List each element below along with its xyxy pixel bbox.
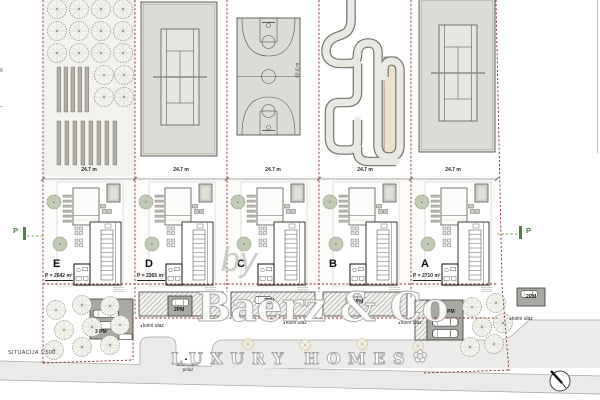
entrance-label-1: ◂kolni ulaz	[140, 324, 164, 329]
plot-area-a: P = 2710 m²	[413, 274, 441, 281]
plot-area-e: P = 2642 m²	[45, 274, 73, 281]
parking-label-a: 2PM	[526, 295, 536, 300]
plot-width-dim-a: 24.7 m	[437, 168, 469, 173]
entrance-arrow-icon: ◂	[140, 323, 142, 328]
basketball-court-icon	[237, 18, 300, 135]
plot-width-dim-b: 24.7 m	[349, 168, 381, 173]
watermark-ornament-icon: ✿	[413, 349, 427, 366]
villa-b	[323, 182, 400, 292]
plot-letter-b: B	[329, 259, 337, 270]
plot-letter-d: D	[145, 259, 153, 270]
side-dimension-label: 40.6 m	[296, 52, 301, 78]
karting-track-icon	[326, 0, 400, 162]
edge-mark-top: 6	[0, 69, 3, 75]
site-plan: SITUACIJA 1:500 6 – 24.7 m 24.7 m 24.7 m…	[0, 0, 600, 400]
entrance-label-4: ◂kolni ulaz	[509, 317, 533, 322]
car-icon	[172, 299, 189, 306]
parking-marker-left: P	[13, 227, 18, 235]
parking-label-d: 2PM	[174, 308, 184, 313]
garage-label-e: 3 PM	[95, 330, 107, 335]
entrance-arrow-icon: ◂	[509, 316, 511, 321]
plot-area-d: P = 2365 m²	[137, 274, 165, 281]
plot-width-dim-e: 24.7 m	[73, 168, 105, 173]
tennis-court-2-icon	[419, 0, 495, 152]
plot-letter-a: A	[421, 259, 429, 270]
plot-width-dim-c: 24.7 m	[257, 168, 289, 173]
watermark-by: by	[221, 243, 257, 277]
tennis-court-1-icon	[141, 2, 217, 156]
plot-width-dim-d: 24.7 m	[165, 168, 197, 173]
watermark-brand: Baerz & Co	[197, 288, 448, 328]
north-arrow-icon	[550, 371, 570, 391]
plot-letter-e: E	[53, 259, 60, 270]
scale-label: SITUACIJA 1:500	[8, 351, 56, 357]
edge-mark-bottom: –	[0, 105, 3, 111]
parking-marker-right: P	[526, 227, 531, 235]
watermark-tagline: LUXURY HOMES	[171, 351, 412, 367]
